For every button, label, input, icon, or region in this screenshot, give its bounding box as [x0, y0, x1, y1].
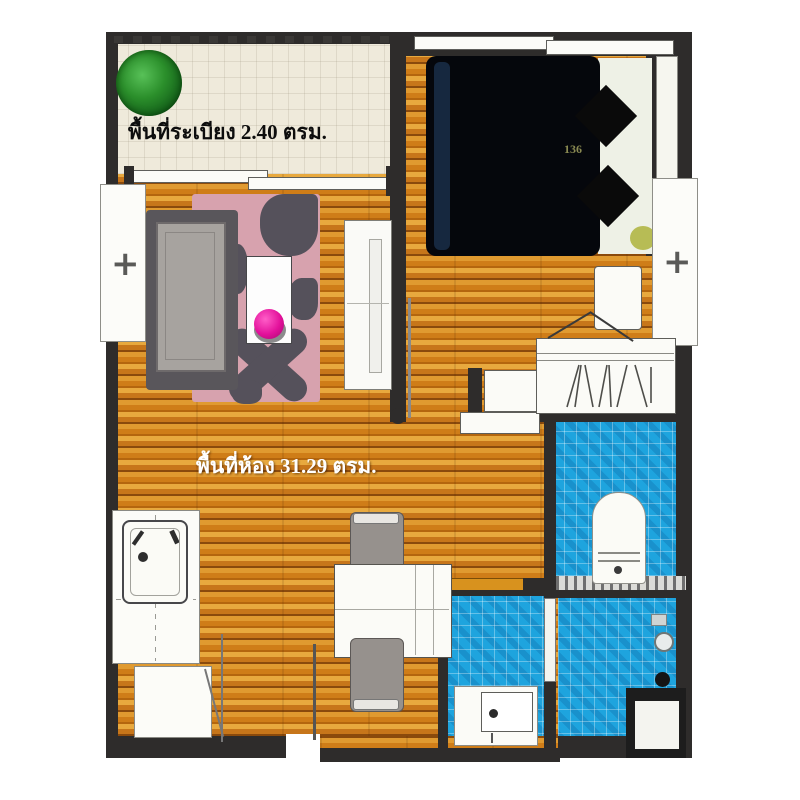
table-seam — [415, 565, 416, 655]
bedroom-window-panel-2 — [546, 40, 674, 55]
balcony-railing — [114, 36, 394, 43]
toilet-seat-line — [598, 560, 640, 562]
plant — [116, 50, 182, 116]
wall-right — [676, 32, 692, 758]
balcony-sliding-door-panel-2 — [248, 177, 392, 190]
wardrobe-rail-line — [537, 353, 674, 354]
wardrobe-rail-line — [537, 360, 674, 361]
sofa-cushion-inner — [165, 232, 215, 360]
tv-console — [344, 220, 392, 390]
balcony-door-jamb-right — [386, 166, 394, 196]
washing-machine — [454, 686, 538, 746]
chair-back — [353, 513, 399, 524]
wash-basin-shelf — [651, 614, 667, 626]
plus-mark-icon: + — [663, 245, 692, 279]
shower-tray-inner — [635, 701, 679, 749]
rug-patch — [260, 194, 318, 256]
wardrobe — [536, 338, 676, 414]
washer-hose — [491, 733, 493, 743]
bed-code-label: 136 — [564, 142, 582, 157]
laundry-door — [544, 598, 556, 682]
toilet-seat-line — [598, 552, 640, 554]
sink-inner-line — [130, 528, 180, 596]
coffee-table — [246, 256, 292, 344]
bedroom-window-panel-1 — [414, 36, 554, 50]
sofa-cushion — [156, 222, 226, 372]
table-seam — [335, 609, 449, 610]
chair-back — [353, 699, 399, 710]
wall-shower-top — [556, 590, 686, 598]
floor-plan: พื้นที่ระเบียง 2.40 ตรม. 136 + + — [0, 0, 800, 800]
kitchen-sink — [122, 520, 188, 604]
toilet — [590, 492, 648, 584]
wall-divider-endcap — [390, 408, 406, 424]
wall-laundry-top2 — [438, 590, 546, 596]
entrance-door-leaf — [313, 644, 316, 740]
wardrobe-hangers-icon — [555, 363, 661, 409]
tv-console-shelf-line — [347, 303, 389, 304]
ac-unit-right: + — [652, 178, 698, 346]
table-seam — [433, 565, 434, 655]
shower-tray — [626, 688, 686, 758]
wall-divider-living-bedroom — [390, 32, 406, 422]
tv-panel — [369, 239, 382, 373]
wash-basin — [654, 632, 674, 652]
refrigerator — [134, 666, 212, 738]
ac-unit-left: + — [100, 184, 146, 342]
floor-drain — [655, 672, 670, 687]
balcony-area-label: พื้นที่ระเบียง 2.40 ตรม. — [128, 116, 327, 149]
plus-mark-icon: + — [111, 247, 140, 281]
bedroom-sliding-door-track — [408, 298, 411, 418]
entry-ledge — [460, 412, 540, 434]
rug-patch — [288, 278, 318, 320]
bed-runner — [434, 62, 450, 250]
wardrobe-annex — [484, 370, 540, 412]
dining-chair-bottom — [350, 638, 404, 712]
magenta-ball — [254, 309, 284, 339]
washer-knob — [489, 709, 498, 718]
room-area-label: พื้นที่ห้อง 31.29 ตรม. — [196, 450, 377, 483]
sofa — [146, 210, 238, 390]
toilet-flush-button — [614, 566, 622, 574]
